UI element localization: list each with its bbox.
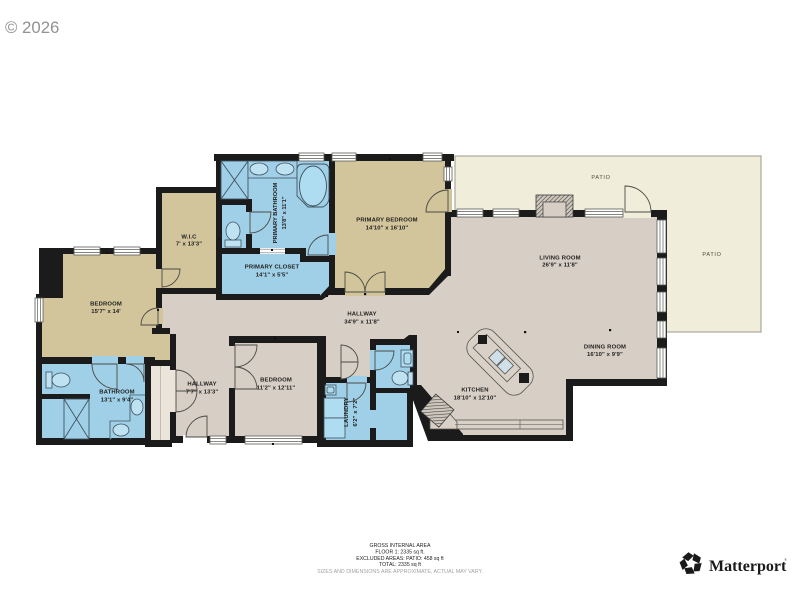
- svg-text:15'7" x 14': 15'7" x 14': [91, 309, 121, 315]
- svg-text:PRIMARY BATHROOM: PRIMARY BATHROOM: [273, 182, 279, 243]
- svg-text:SIZES AND DIMENSIONS ARE APPRO: SIZES AND DIMENSIONS ARE APPROXIMATE, AC…: [317, 569, 483, 575]
- svg-text:LIVING ROOM: LIVING ROOM: [539, 256, 580, 262]
- svg-text:18'10" x 12'10": 18'10" x 12'10": [454, 396, 497, 402]
- svg-text:KITCHEN: KITCHEN: [461, 388, 488, 394]
- svg-text:11'2" x 12'11": 11'2" x 12'11": [257, 386, 296, 392]
- svg-text:PATIO: PATIO: [591, 175, 610, 181]
- svg-text:HALLWAY: HALLWAY: [347, 312, 376, 318]
- svg-text:BATHROOM: BATHROOM: [99, 390, 134, 396]
- svg-text:34'9" x 11'8": 34'9" x 11'8": [344, 320, 380, 326]
- svg-text:26'9" x 11'8": 26'9" x 11'8": [542, 263, 578, 269]
- svg-text:7'7" x 13'3": 7'7" x 13'3": [186, 390, 219, 396]
- svg-text:HALLWAY: HALLWAY: [187, 382, 216, 388]
- svg-text:16'10" x 9'9": 16'10" x 9'9": [587, 352, 623, 358]
- svg-text:BEDROOM: BEDROOM: [90, 302, 122, 308]
- svg-text:®: ®: [784, 557, 787, 562]
- svg-text:14'10" x 16'10": 14'10" x 16'10": [366, 226, 409, 232]
- svg-text:LAUNDRY: LAUNDRY: [344, 397, 350, 427]
- svg-text:PATIO: PATIO: [702, 252, 721, 258]
- svg-text:GROSS INTERNAL AREA: GROSS INTERNAL AREA: [370, 543, 431, 549]
- svg-text:BEDROOM: BEDROOM: [260, 378, 292, 384]
- svg-text:13'8" x 11'1": 13'8" x 11'1": [282, 196, 288, 229]
- svg-text:TOTAL: 2335 sq ft: TOTAL: 2335 sq ft: [379, 562, 421, 568]
- svg-text:© 2026: © 2026: [5, 18, 59, 37]
- svg-text:DINING ROOM: DINING ROOM: [584, 345, 626, 351]
- svg-text:PRIMARY CLOSET: PRIMARY CLOSET: [245, 265, 300, 271]
- svg-text:PRIMARY BEDROOM: PRIMARY BEDROOM: [356, 218, 418, 224]
- svg-text:14'1" x 5'5": 14'1" x 5'5": [256, 273, 289, 279]
- svg-text:FLOOR 1: 2335 sq ft.: FLOOR 1: 2335 sq ft.: [375, 549, 424, 555]
- svg-text:Matterport: Matterport: [709, 558, 787, 575]
- svg-text:W.I.C: W.I.C: [181, 235, 197, 241]
- svg-text:EXCLUDED AREAS: PATIO: 458 sq: EXCLUDED AREAS: PATIO: 458 sq ft: [356, 556, 444, 562]
- svg-text:6'2" x 7'2": 6'2" x 7'2": [353, 397, 359, 426]
- svg-text:13'1" x 9'4": 13'1" x 9'4": [101, 398, 134, 404]
- svg-text:7' x 13'3": 7' x 13'3": [176, 242, 202, 248]
